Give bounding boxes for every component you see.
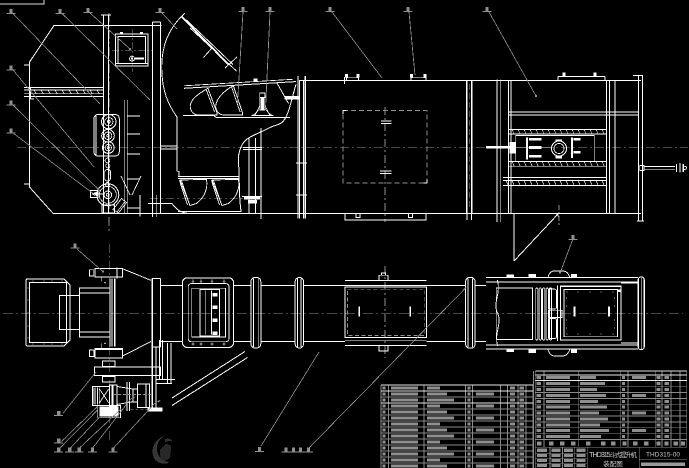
svg-text:THD315斗式提升机: THD315斗式提升机: [589, 450, 638, 459]
svg-text:装配图: 装配图: [603, 459, 623, 468]
svg-text:THD315-00: THD315-00: [646, 452, 680, 459]
